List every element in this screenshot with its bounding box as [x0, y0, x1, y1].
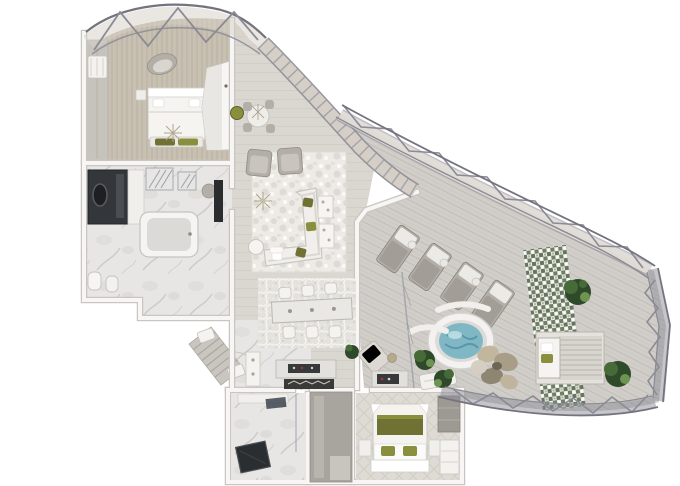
nightstand [136, 90, 146, 100]
toilet [88, 272, 101, 290]
second-bathroom [231, 393, 306, 480]
bed [148, 88, 205, 147]
dining-chair [306, 326, 319, 339]
dining-chair [329, 326, 342, 339]
dark-runner [284, 379, 334, 389]
nook-chair [243, 102, 252, 111]
ceiling-light [164, 124, 182, 142]
olive-cushion [155, 139, 175, 146]
armchair [246, 149, 273, 177]
nook-chair [243, 123, 252, 132]
nightstand [359, 440, 371, 456]
headboard [148, 88, 205, 97]
second-bedroom [356, 393, 460, 480]
sofa-tray [270, 247, 283, 253]
console-table [318, 196, 333, 218]
bathtub [140, 212, 198, 257]
sideboard [276, 360, 336, 378]
hall-console [246, 352, 260, 386]
dining-chair [302, 285, 315, 297]
vanity-unit [88, 170, 128, 224]
vanity-stool [202, 184, 216, 198]
shower-tray [236, 441, 271, 473]
wall-tv [214, 180, 223, 222]
nook-chair [266, 124, 275, 133]
pergola-slats [558, 336, 602, 380]
deck-console [372, 371, 408, 387]
bed2 [371, 404, 429, 472]
master-bathroom [84, 165, 232, 318]
side-table [440, 259, 448, 267]
floorplan-canvas [0, 0, 680, 486]
luggage-bench [88, 56, 107, 78]
dresser [440, 440, 459, 474]
nightstand [429, 440, 441, 456]
deck-side-table [388, 354, 397, 363]
sputnik-chandelier [254, 192, 272, 210]
closet-block [310, 392, 352, 482]
faucet [188, 232, 192, 236]
porthole-mirror [93, 184, 107, 206]
olive-cushion [178, 139, 198, 146]
closet-shelf [330, 456, 350, 480]
nook-chair [265, 100, 274, 109]
olive-pillow [306, 221, 317, 231]
olive-pillow [541, 354, 553, 363]
armchair [277, 147, 303, 175]
side-table [408, 241, 416, 249]
dining-chair [283, 326, 296, 339]
olive-pillow [302, 197, 313, 207]
side-table [472, 278, 480, 286]
cabana-daybed [536, 332, 604, 384]
potted-plant [231, 107, 244, 120]
bidet [106, 276, 118, 292]
olive-pillow [381, 446, 395, 456]
headboard2 [371, 460, 429, 472]
floorplan-svg [0, 0, 680, 486]
bath-mat [266, 397, 287, 409]
console-table [319, 224, 334, 248]
dining-chair [279, 287, 292, 299]
closet-pod [202, 60, 233, 150]
coffee-table [249, 240, 264, 255]
dining-chair [325, 283, 338, 295]
olive-pillow [403, 446, 417, 456]
sideboard-tray [288, 364, 320, 373]
door-handle [224, 84, 227, 87]
white-pillow [541, 343, 553, 352]
